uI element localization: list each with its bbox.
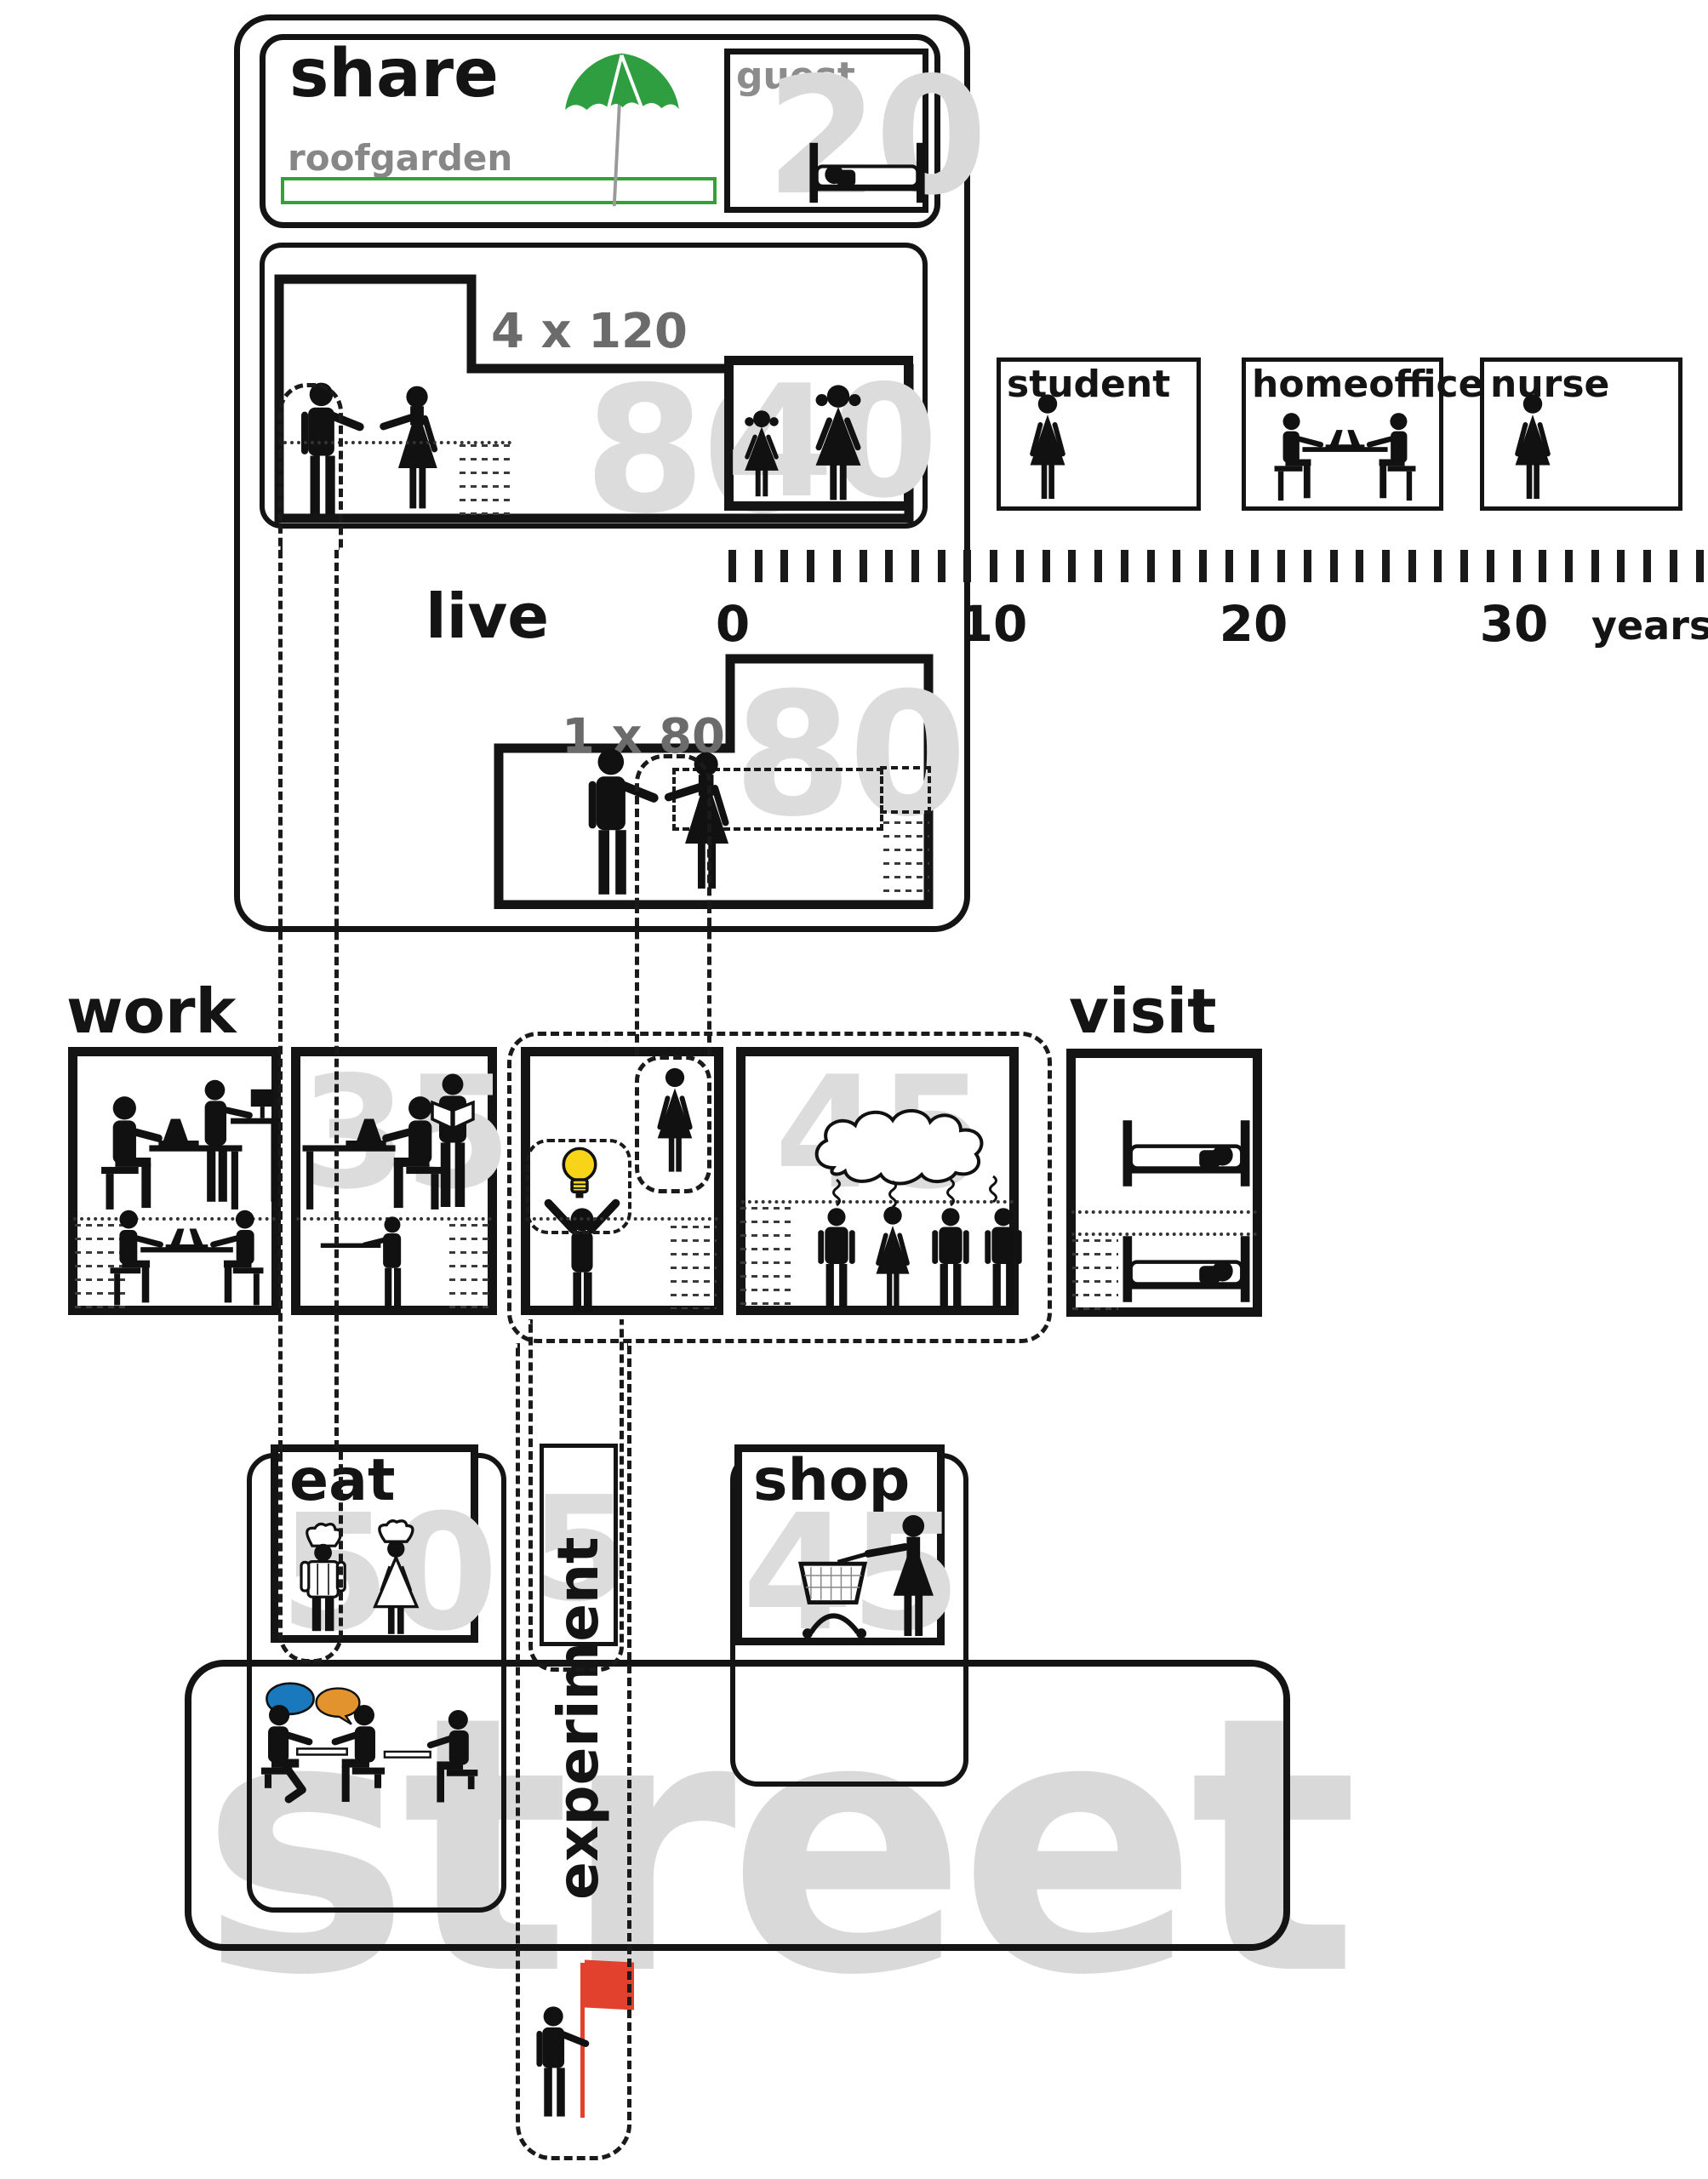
timeline-tick — [938, 550, 945, 582]
timeline-tick — [990, 550, 997, 582]
track-woman-work-dashed — [635, 1055, 711, 1193]
plan-option-dashed-small — [880, 766, 931, 814]
timeline-tick — [1382, 550, 1390, 582]
live-title: live — [426, 586, 549, 647]
timeline-tick — [1094, 550, 1102, 582]
guest-bed-icon — [1122, 1232, 1251, 1306]
nurse-woman-icon — [1494, 393, 1572, 506]
stairs-hatch — [449, 1224, 492, 1309]
stairs-hatch — [460, 444, 511, 518]
timeline-tick — [860, 550, 867, 582]
visit-title: visit — [1069, 981, 1217, 1042]
standing-desk-icon — [189, 1071, 283, 1214]
counter-person-icon — [300, 1215, 440, 1311]
track-man-line — [278, 550, 283, 1449]
experiment-inner-column — [528, 1319, 624, 1672]
timeline-tick — [1643, 550, 1651, 582]
cafe-table-single-icon — [383, 1709, 485, 1811]
timeline-tick — [1356, 550, 1363, 582]
timeline-tick — [1068, 550, 1076, 582]
girl-icon — [800, 381, 877, 509]
timeline-tick — [1225, 550, 1233, 582]
track-man-line — [334, 550, 339, 1449]
student-woman-icon — [1008, 393, 1087, 506]
chef-woman-icon — [359, 1518, 431, 1638]
timeline-tick — [1408, 550, 1416, 582]
idea-dashed-frame — [526, 1139, 631, 1234]
guest-bed-icon — [1122, 1117, 1251, 1190]
timeline-tick — [885, 550, 893, 582]
timeline-tick — [1513, 550, 1521, 582]
woman-icon — [368, 385, 457, 519]
timeline-tick — [1696, 550, 1704, 582]
timeline-tick — [1539, 550, 1546, 582]
shopping-cart-woman-icon — [785, 1513, 951, 1639]
timeline-ticks — [728, 550, 1704, 582]
homeoffice-table-icon — [1258, 407, 1432, 507]
timeline-tick — [1670, 550, 1677, 582]
timeline-tick — [1591, 550, 1599, 582]
track-woman-line — [707, 905, 711, 1055]
timeline-label-20: 20 — [1220, 599, 1288, 649]
reading-person-icon — [419, 1071, 487, 1214]
timeline-tick — [1147, 550, 1155, 582]
live-unit-large-label: 4 x 120 — [491, 308, 688, 356]
stairs-hatch — [883, 821, 929, 902]
timeline-tick — [1173, 550, 1180, 582]
track-man-dashed — [278, 383, 343, 550]
timeline-tick — [728, 550, 736, 582]
timeline-tick — [807, 550, 814, 582]
meeting-table-icon — [95, 1204, 278, 1313]
diagram-canvas: street 5 share roofgarden guest 20 4 x 1… — [0, 0, 1708, 2179]
homeoffice-label: homeoffice — [1252, 366, 1483, 403]
timeline-tick — [1460, 550, 1468, 582]
timeline-tick — [1434, 550, 1442, 582]
parasol-icon — [551, 47, 692, 213]
timeline-tick — [1565, 550, 1573, 582]
timeline-tick — [1277, 550, 1285, 582]
track-woman-line — [635, 905, 639, 1055]
track-man-chef-dashed — [278, 1449, 343, 1663]
stairs-hatch — [1072, 1239, 1118, 1311]
timeline-tick — [1016, 550, 1024, 582]
timeline-unit-label: years — [1591, 606, 1708, 645]
shop-title: shop — [753, 1452, 910, 1510]
share-title: share — [289, 41, 499, 107]
timeline-tick — [1121, 550, 1128, 582]
timeline-tick — [1617, 550, 1625, 582]
timeline-tick — [755, 550, 763, 582]
guest-bed-icon — [808, 136, 926, 209]
cafe-table-pair-icon — [255, 1704, 390, 1811]
track-woman-dashed — [635, 754, 711, 905]
floor-divider-dotted — [1071, 1210, 1257, 1214]
timeline-tick — [963, 550, 971, 582]
timeline-label-30: 30 — [1480, 599, 1549, 649]
timeline-tick — [1487, 550, 1494, 582]
timeline-tick — [1043, 550, 1050, 582]
timeline-tick — [911, 550, 919, 582]
timeline-tick — [1251, 550, 1259, 582]
timeline-tick — [1330, 550, 1338, 582]
roofgarden-label: roofgarden — [288, 140, 512, 176]
girl-icon — [734, 407, 790, 504]
timeline-tick — [1304, 550, 1311, 582]
timeline-tick — [780, 550, 788, 582]
timeline-tick — [1199, 550, 1207, 582]
work-title: work — [66, 981, 236, 1042]
timeline-tick — [833, 550, 841, 582]
